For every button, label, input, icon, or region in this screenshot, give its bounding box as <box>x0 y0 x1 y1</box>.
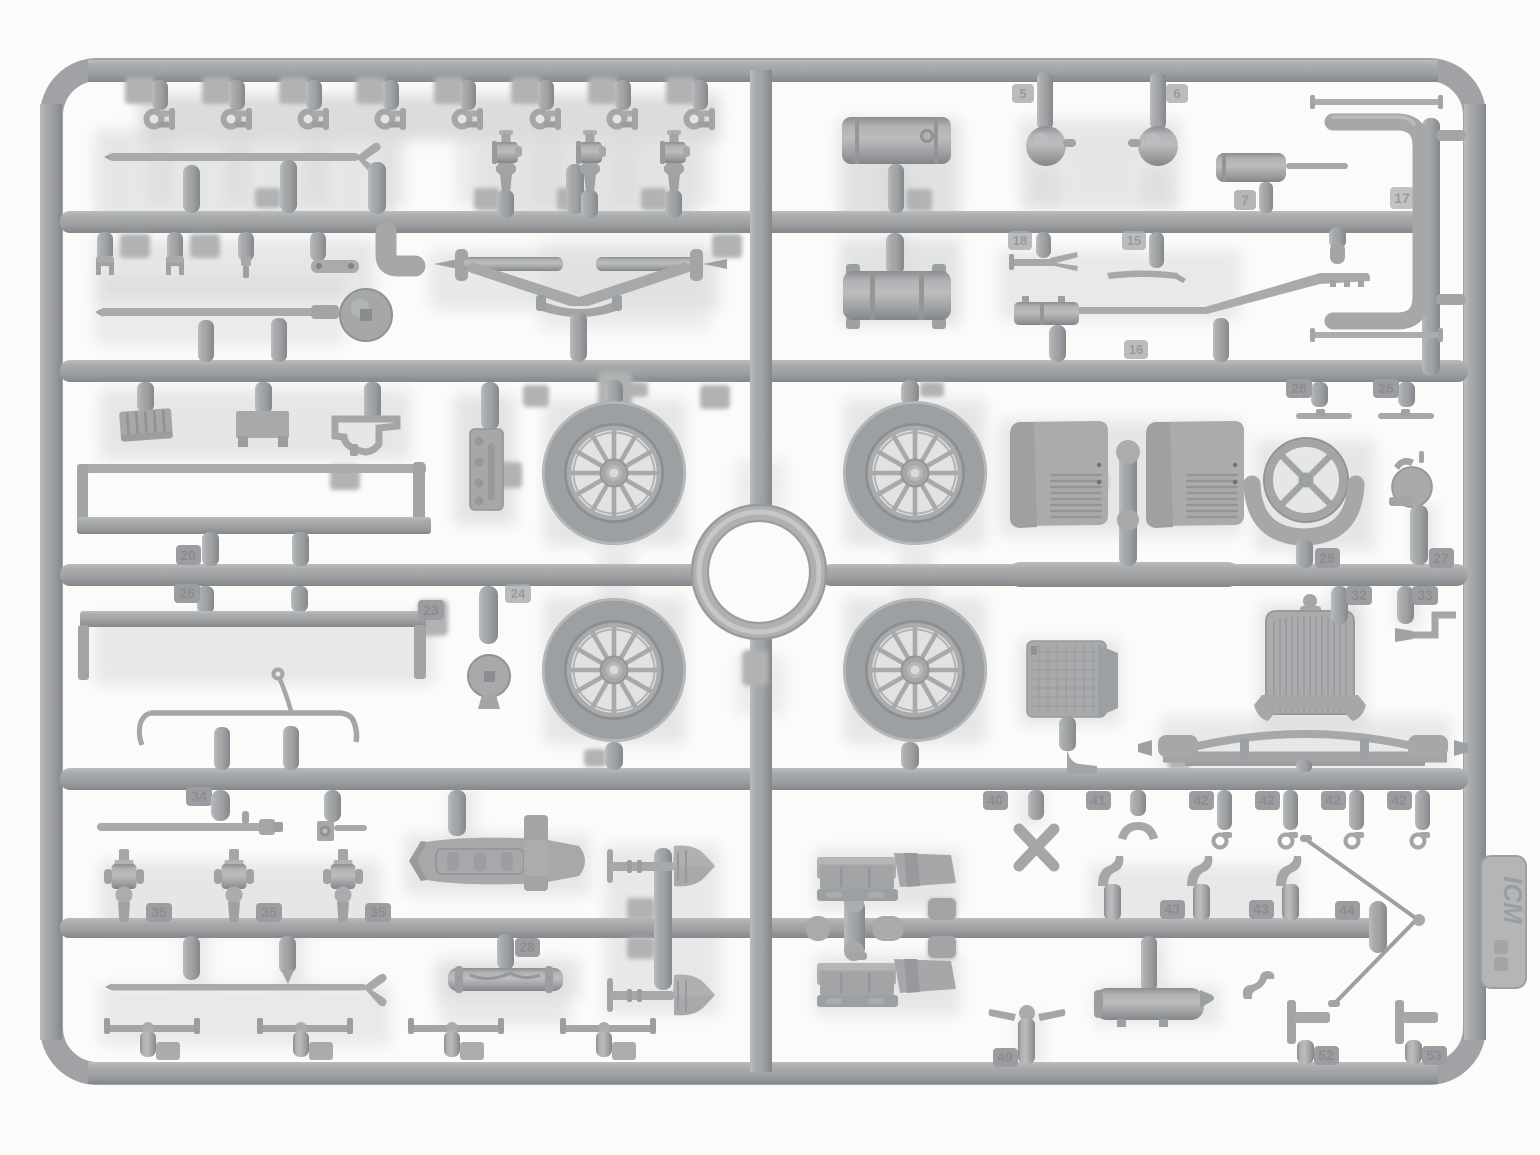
svg-text:53: 53 <box>1426 1047 1442 1063</box>
svg-text:17: 17 <box>1394 190 1410 206</box>
svg-text:26: 26 <box>1291 380 1307 396</box>
svg-text:44: 44 <box>1339 902 1355 918</box>
svg-text:35: 35 <box>370 904 386 920</box>
svg-text:42: 42 <box>1391 792 1407 808</box>
svg-text:20: 20 <box>180 547 196 563</box>
svg-text:16: 16 <box>1129 342 1143 357</box>
svg-text:24: 24 <box>511 586 526 601</box>
svg-text:35: 35 <box>261 904 277 920</box>
svg-text:40: 40 <box>987 792 1003 808</box>
svg-text:35: 35 <box>151 904 167 920</box>
svg-text:ICM: ICM <box>1498 876 1528 925</box>
svg-text:49: 49 <box>997 1049 1013 1065</box>
svg-text:28: 28 <box>519 939 535 955</box>
svg-text:52: 52 <box>1318 1047 1334 1063</box>
svg-text:41: 41 <box>1090 792 1106 808</box>
svg-text:25: 25 <box>1319 550 1335 566</box>
svg-text:33: 33 <box>1417 587 1433 603</box>
svg-text:34: 34 <box>191 788 207 804</box>
svg-text:42: 42 <box>1325 792 1341 808</box>
svg-text:5: 5 <box>1019 86 1026 101</box>
svg-text:6: 6 <box>1173 86 1180 101</box>
svg-text:42: 42 <box>1259 792 1275 808</box>
svg-text:23: 23 <box>423 602 439 618</box>
svg-text:42: 42 <box>1193 792 1209 808</box>
svg-text:26: 26 <box>1378 380 1394 396</box>
svg-text:27: 27 <box>1433 550 1449 566</box>
svg-text:32: 32 <box>1351 587 1367 603</box>
svg-text:43: 43 <box>1253 901 1269 917</box>
svg-text:7: 7 <box>1241 192 1249 208</box>
svg-text:43: 43 <box>1164 901 1180 917</box>
svg-text:26: 26 <box>179 585 195 601</box>
svg-text:18: 18 <box>1013 233 1027 248</box>
svg-text:15: 15 <box>1127 233 1141 248</box>
